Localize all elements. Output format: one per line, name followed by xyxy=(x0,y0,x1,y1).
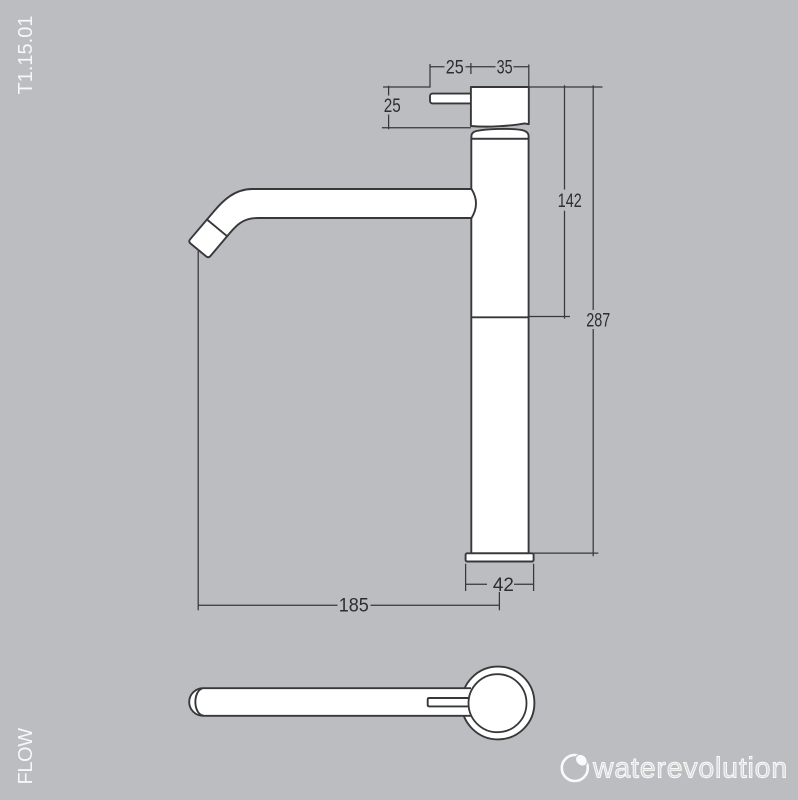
svg-text:142: 142 xyxy=(558,191,582,212)
svg-text:25: 25 xyxy=(446,58,464,79)
svg-text:waterevolution: waterevolution xyxy=(592,753,788,785)
svg-text:185: 185 xyxy=(339,596,369,617)
svg-text:42: 42 xyxy=(493,575,514,596)
svg-text:25: 25 xyxy=(384,96,401,117)
svg-text:287: 287 xyxy=(586,310,610,331)
svg-text:T1.15.01: T1.15.01 xyxy=(15,16,37,95)
svg-text:35: 35 xyxy=(497,58,513,79)
svg-text:FLOW: FLOW xyxy=(15,728,37,785)
